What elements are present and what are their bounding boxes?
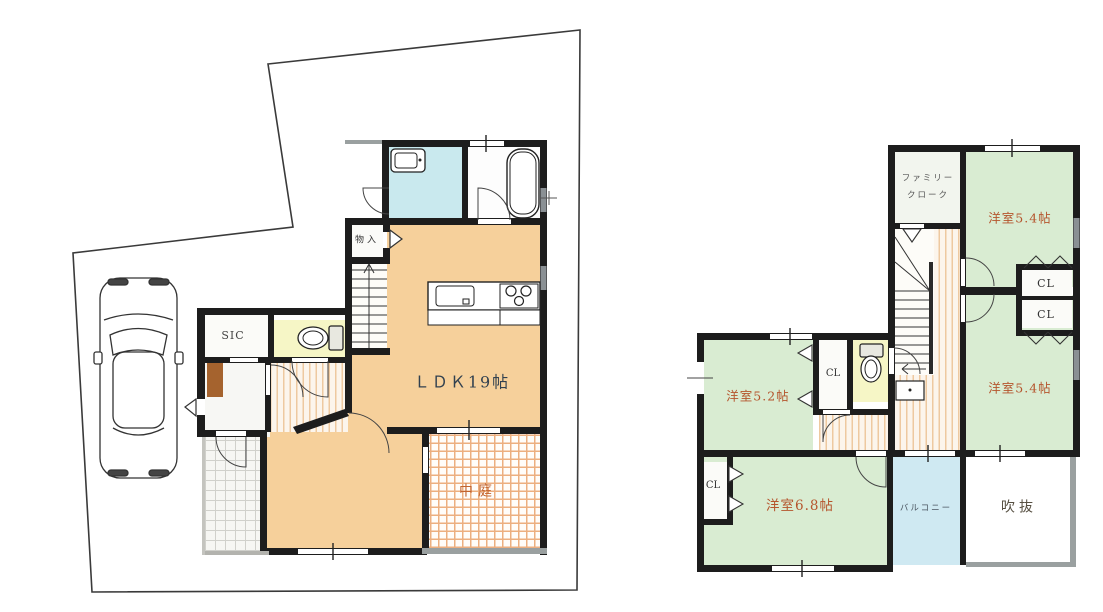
label-void: 吹抜	[1001, 501, 1037, 516]
label-bedroom-54-top: 洋室5.4帖	[988, 211, 1051, 224]
label-closet-52: CL	[826, 369, 840, 380]
label-bedroom-68: 洋室6.8帖	[766, 499, 834, 513]
label-balcony: バルコニー	[900, 505, 952, 514]
label-closet-top2: CL	[1037, 309, 1055, 321]
sink-icon	[391, 149, 425, 172]
washbasin-2f-icon	[896, 381, 924, 400]
floor-plan-page: 物入 SIC ＬＤＫ19帖 中庭 ファミリー クローク 洋室5.4帖 CL CL…	[0, 0, 1103, 612]
toilet-2f-icon	[860, 344, 883, 382]
label-storage-1f: 物入	[355, 236, 379, 245]
label-family-cloak-1: ファミリー	[902, 175, 955, 184]
label-family-cloak-2: クローク	[907, 192, 949, 201]
entry-door-icon	[185, 399, 196, 416]
floorplan-linework	[0, 0, 1103, 612]
stairs-2f-icon	[895, 237, 933, 374]
label-closet-68: CL	[706, 481, 720, 492]
label-closet-top1: CL	[1037, 278, 1055, 290]
label-sic: SIC	[221, 330, 244, 342]
label-ldk: ＬＤＫ19帖	[414, 375, 510, 392]
toilet-1f-icon	[298, 326, 343, 350]
stairs-1f-icon	[352, 264, 387, 348]
storage-door-icon	[390, 230, 402, 248]
bathtub-icon	[507, 149, 557, 218]
kitchen-counter-icon	[428, 282, 540, 325]
label-bedroom-52: 洋室5.2帖	[726, 389, 789, 402]
label-bedroom-54-right: 洋室5.4帖	[988, 381, 1051, 394]
door-arcs-1f	[216, 188, 510, 467]
label-courtyard: 中庭	[459, 485, 497, 500]
car-icon	[94, 278, 183, 478]
